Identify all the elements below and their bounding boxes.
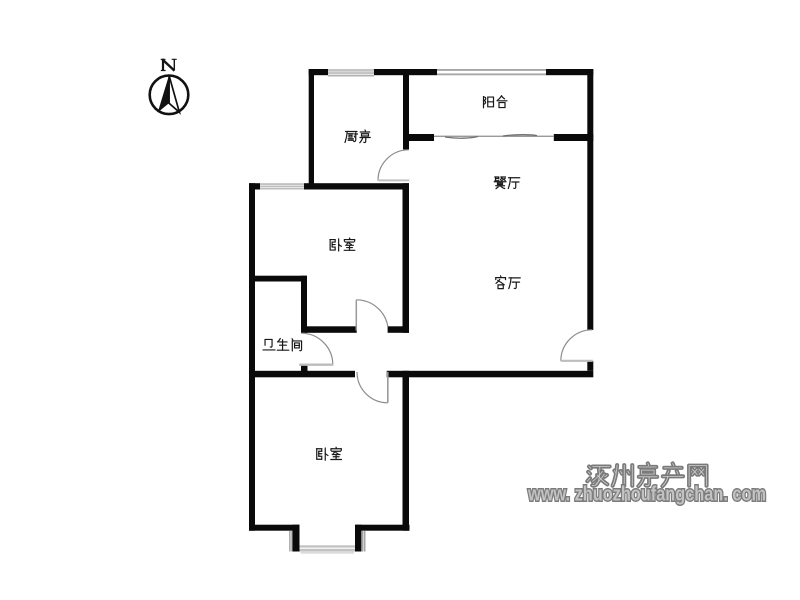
svg-text:www. zhuozhoufangchan. com: www. zhuozhoufangchan. com xyxy=(527,483,766,505)
